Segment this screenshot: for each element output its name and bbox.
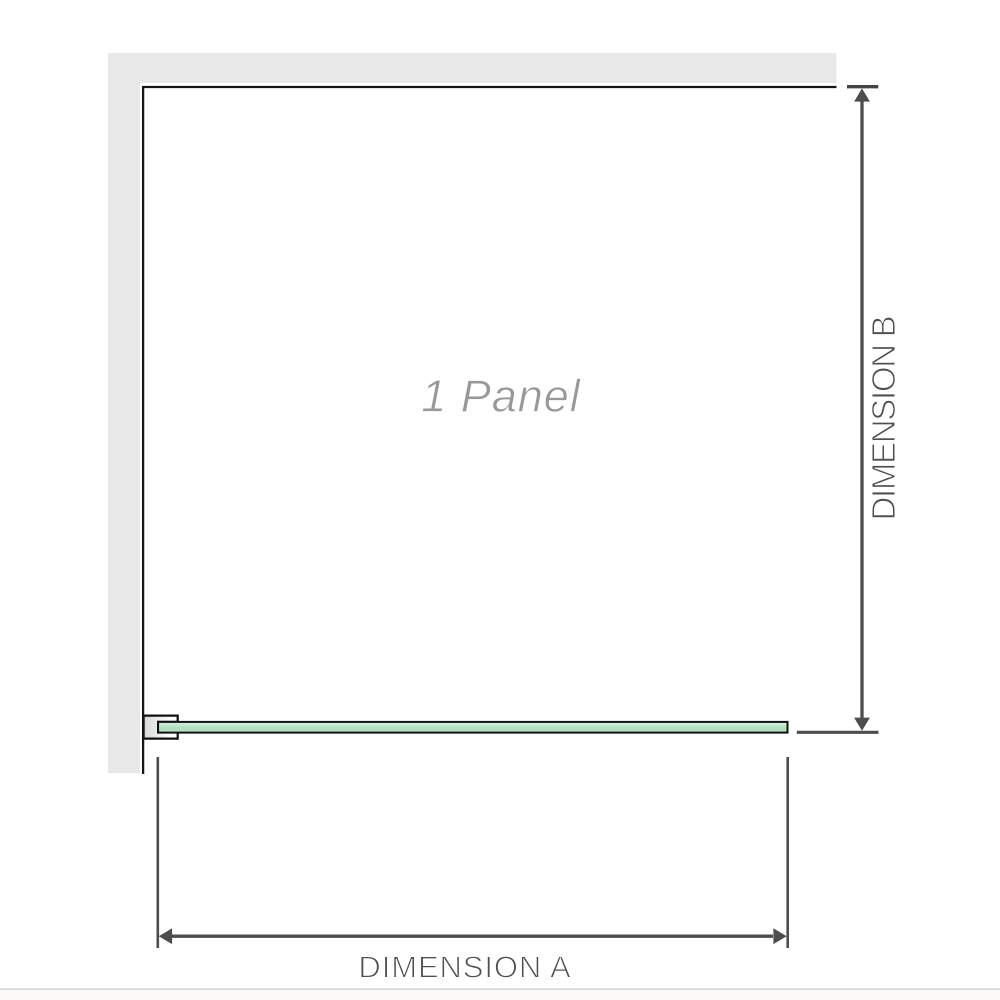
- svg-text:DIMENSION A: DIMENSION A: [358, 950, 571, 985]
- svg-text:1 Panel: 1 Panel: [421, 371, 582, 422]
- svg-text:DIMENSION B: DIMENSION B: [865, 316, 902, 520]
